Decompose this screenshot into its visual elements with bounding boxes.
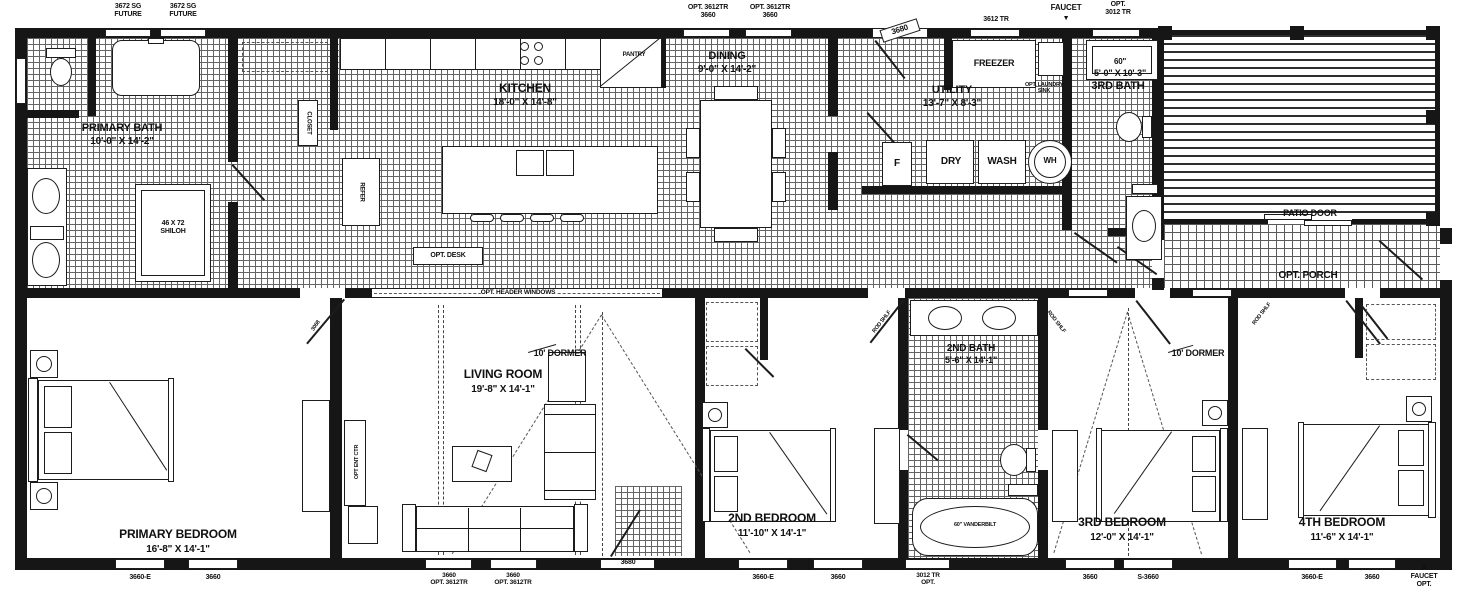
room-label-primary-bath: PRIMARY BATH <box>82 122 163 134</box>
stool <box>530 214 554 222</box>
deck-post <box>1426 26 1440 40</box>
stool <box>560 214 584 222</box>
header-windows-label: OPT. HEADER WINDOWS <box>481 289 556 296</box>
opening-label: 3660 OPT. 3612TR <box>430 572 467 587</box>
corner-table <box>348 506 378 544</box>
wall-house-right-stub <box>1152 278 1164 290</box>
medicine-cabinet <box>30 226 64 240</box>
deck-post <box>1426 110 1440 124</box>
dining-chair <box>686 172 700 202</box>
tub-label: 60" VANDERBILT <box>954 522 996 528</box>
opening-label: S-3660 <box>1137 574 1158 582</box>
dresser <box>1052 430 1078 522</box>
window <box>188 559 238 569</box>
sofa-cushion-line <box>520 508 521 552</box>
sink <box>1132 210 1156 242</box>
closet-rod-shelf <box>242 42 328 72</box>
deck-post <box>1426 212 1440 226</box>
window <box>970 29 1020 37</box>
medicine-cabinet <box>1008 484 1038 496</box>
lamp <box>36 356 52 372</box>
dresser <box>874 428 900 524</box>
room-dims-fourth-bedroom: 11'-6" X 14'-1" <box>1311 532 1374 543</box>
closet-shelf <box>706 346 758 386</box>
room-dims-third-bath: 5'-0" X 10'-3" <box>1094 68 1146 78</box>
sink <box>928 306 962 330</box>
wall-primary-bath <box>228 202 238 288</box>
bed-headboard <box>1428 422 1436 518</box>
toilet-bowl <box>1000 444 1028 476</box>
closet-shelf <box>1366 304 1436 340</box>
wall-tub-stub <box>88 38 96 116</box>
sofa <box>416 506 574 552</box>
wall-primary-living <box>330 298 342 558</box>
opening-label: OPT. 3012 TR <box>1105 1 1130 17</box>
door-swing <box>1135 300 1170 345</box>
stool <box>500 214 524 222</box>
deck-rail-right <box>1435 30 1440 220</box>
front-door-label: 3680 <box>621 559 636 567</box>
room-label-third-bath: 3RD BATH <box>1091 80 1144 92</box>
marriage-wall-seg <box>15 288 300 298</box>
bath3-size-note: 60" <box>1114 58 1126 67</box>
toilet-bowl <box>50 58 72 86</box>
deck-post <box>1158 26 1172 40</box>
bed-footboard <box>1298 422 1304 518</box>
desk-label: OPT. DESK <box>430 252 465 260</box>
closet-shelf <box>706 302 758 342</box>
opening-label: 3660 OPT. 3612TR <box>494 572 531 587</box>
marriage-wall-seg <box>1380 288 1452 298</box>
dormer-centerline <box>602 312 603 556</box>
room-dims-kitchen: 18'-0" X 14'-8" <box>493 97 557 108</box>
toilet-tank <box>1142 116 1152 138</box>
bed-headboard <box>28 378 38 482</box>
opening-label: OPT. 3612TR 3660 <box>688 4 728 20</box>
sink <box>982 306 1016 330</box>
opening-label: 3660 <box>206 574 221 582</box>
deck-post <box>1290 26 1304 40</box>
range-burner <box>534 56 543 65</box>
dining-chair <box>772 172 786 202</box>
room-dims-utility: 13'-7" X 8'-3" <box>923 98 981 109</box>
tub-faucet <box>148 38 164 44</box>
lamp <box>36 488 52 504</box>
wall-left <box>15 28 27 570</box>
window <box>160 29 206 37</box>
pantry-label: PANTRY <box>623 52 646 59</box>
opening-label: 3660-E <box>1301 574 1322 582</box>
floor-plan: PRIMARY BATH 10'-0" X 14'-2" KITCHEN 18'… <box>0 0 1471 600</box>
faucet-arrow-icon: ▼ <box>1063 15 1070 23</box>
door-opening-porch-right <box>1440 244 1452 280</box>
sofa-back-line <box>416 528 574 529</box>
opening-label: 3672 SG FUTURE <box>169 3 196 19</box>
dining-chair <box>714 86 758 100</box>
range-burner <box>534 42 543 51</box>
opening-label: 3012 TR OPT. <box>916 572 940 587</box>
loveseat-cushion-line <box>544 452 596 453</box>
dining-chair <box>714 228 758 242</box>
refrigerator-label: REFER <box>358 182 365 201</box>
loveseat-arm-line <box>544 414 596 415</box>
lamp <box>1412 402 1426 416</box>
sofa-cushion-line <box>468 508 469 552</box>
room-label-kitchen: KITCHEN <box>499 82 551 95</box>
closet-label: CLOSET <box>305 111 312 134</box>
wall-closet <box>330 38 338 130</box>
opening-label: 3660-E <box>129 574 150 582</box>
room-label-second-bath: 2ND BATH <box>947 343 995 354</box>
room-dims-second-bedroom: 11'-10" X 14'-1" <box>738 528 806 539</box>
wall-freezer-nook <box>944 38 952 90</box>
rod-shelf-label: ROD SHLF <box>1251 302 1272 327</box>
wall-bath2-bed3 <box>1038 470 1048 558</box>
sofa-arm <box>574 504 588 552</box>
window <box>1348 559 1396 569</box>
toilet-bowl <box>1116 112 1142 142</box>
room-label-fourth-bedroom: 4TH BEDROOM <box>1299 516 1385 529</box>
opening-label: 3660 <box>1365 574 1380 582</box>
dining-table <box>700 100 772 228</box>
island-sink <box>516 150 544 176</box>
bed-pillow <box>714 436 738 472</box>
dresser <box>302 400 330 512</box>
wall-bed2-bath2 <box>898 298 908 430</box>
dormer-window <box>1192 289 1232 297</box>
dining-chair <box>772 128 786 158</box>
room-label-living: LIVING ROOM <box>464 368 542 381</box>
island-sink <box>546 150 574 176</box>
toilet-tank <box>46 48 76 58</box>
window <box>738 559 788 569</box>
range-burner <box>520 42 529 51</box>
wall-bed2-closet <box>760 298 768 360</box>
dormer-window <box>1068 289 1108 297</box>
furnace-label: F <box>894 158 900 169</box>
garden-tub <box>112 40 200 96</box>
toilet-tank <box>1026 448 1036 472</box>
bed-pillow <box>1192 436 1216 472</box>
opening-label: OPT. 3612TR 3660 <box>750 4 790 20</box>
corner-pantry <box>600 38 662 88</box>
deck-boards <box>1164 35 1435 219</box>
room-label-dining: DINING <box>708 50 745 62</box>
water-heater-label: WH <box>1044 157 1057 166</box>
window <box>105 29 151 37</box>
window <box>16 58 26 104</box>
room-label-third-bedroom: 3RD BEDROOM <box>1078 516 1166 529</box>
window <box>115 559 165 569</box>
dining-chair <box>686 128 700 158</box>
ent-center-label: OPT ENT CTR <box>354 445 360 479</box>
wall-toilet-nook <box>27 110 79 118</box>
opening-label: 3660-E <box>752 574 773 582</box>
closet-shelf <box>1366 344 1436 380</box>
window <box>813 559 863 569</box>
range-burner <box>520 56 529 65</box>
dormer-label-third: 10' DORMER <box>1172 348 1225 358</box>
opening-label: 3672 SG FUTURE <box>114 3 141 19</box>
room-label-second-bedroom: 2ND BEDROOM <box>728 512 816 525</box>
bed-footboard <box>830 428 836 522</box>
opening-label: 3660 <box>831 574 846 582</box>
room-dims-living: 19'-8" X 14'-1" <box>471 384 535 395</box>
window <box>1092 29 1140 37</box>
faucet-arrow-icon: ▲ <box>1421 564 1428 572</box>
wall-utility-bottom <box>862 186 1070 194</box>
entry-tile-floor <box>615 486 682 556</box>
wall-dining-utility <box>828 152 838 210</box>
bed-pillow <box>1192 476 1216 512</box>
rod-shelf-label: ROD SHLF <box>871 310 892 335</box>
dryer-label: DRY <box>941 156 961 167</box>
window <box>1288 559 1337 569</box>
bed-pillow <box>1398 470 1424 506</box>
armchair <box>548 352 586 402</box>
room-dims-primary-bath: 10'-0" X 14'-2" <box>90 136 154 147</box>
window <box>1123 559 1173 569</box>
shower-label: 46 X 72 SHILOH <box>160 220 185 236</box>
patio-door-leaf <box>1304 220 1352 226</box>
bed-headboard <box>1220 428 1228 522</box>
dormer-label-living: 10' DORMER <box>534 348 587 358</box>
sink <box>32 242 60 278</box>
opt-porch-label: OPT. PORCH <box>1278 270 1337 281</box>
bed-pillow <box>44 432 72 474</box>
window <box>425 559 472 569</box>
sink <box>32 178 60 214</box>
patio-door-label: PATIO DOOR <box>1283 208 1337 218</box>
marriage-wall-seg <box>662 288 868 298</box>
medicine-cabinet <box>1132 184 1158 194</box>
bed-pillow <box>44 386 72 428</box>
bed-footboard <box>1096 428 1102 522</box>
faucet-label-top: FAUCET <box>1051 4 1082 13</box>
opening-label: 3612 TR <box>983 16 1008 24</box>
wall-bed3-bed4 <box>1228 298 1238 558</box>
dresser <box>1242 428 1268 520</box>
bed-footboard <box>168 378 174 482</box>
lamp <box>1208 406 1222 420</box>
window <box>905 559 950 569</box>
room-dims-third-bedroom: 12'-0" X 14'-1" <box>1090 532 1154 543</box>
room-dims-second-bath: 5'-6" X 14'-1" <box>945 355 997 365</box>
room-label-primary-bedroom: PRIMARY BEDROOM <box>119 528 237 541</box>
wall-primary-bath <box>228 38 238 162</box>
window <box>745 29 792 37</box>
laundry-sink <box>1038 42 1064 76</box>
wall-bath2-bed3 <box>1038 298 1048 430</box>
window <box>490 559 537 569</box>
rod-shelf-label: ROD SHLF <box>1045 310 1066 335</box>
sofa-arm <box>402 504 416 552</box>
lamp <box>708 408 722 422</box>
loveseat-arm-line <box>544 490 596 491</box>
washer-label: WASH <box>987 156 1016 167</box>
opening-label: 3660 <box>1083 574 1098 582</box>
marriage-wall-seg <box>345 288 372 298</box>
room-dims-primary-bedroom: 16'-8" X 14'-1" <box>146 544 210 555</box>
bed-headboard <box>702 428 710 522</box>
bed-pillow <box>714 476 738 512</box>
faucet-label-bottom: FAUCET OPT. <box>1411 573 1438 589</box>
bed-pillow <box>1398 430 1424 466</box>
freezer-label: FREEZER <box>974 58 1015 68</box>
window <box>1065 559 1115 569</box>
stool <box>470 214 494 222</box>
window <box>683 29 730 37</box>
laundry-sink-label: OPT. LAUNDRY SINK <box>1025 82 1063 94</box>
room-label-utility: UTILITY <box>932 84 972 96</box>
deck-rail-bottom-left <box>1164 219 1268 224</box>
wall-dining-utility <box>828 38 838 116</box>
room-dims-dining: 9'-0" X 14'-2" <box>698 64 756 75</box>
